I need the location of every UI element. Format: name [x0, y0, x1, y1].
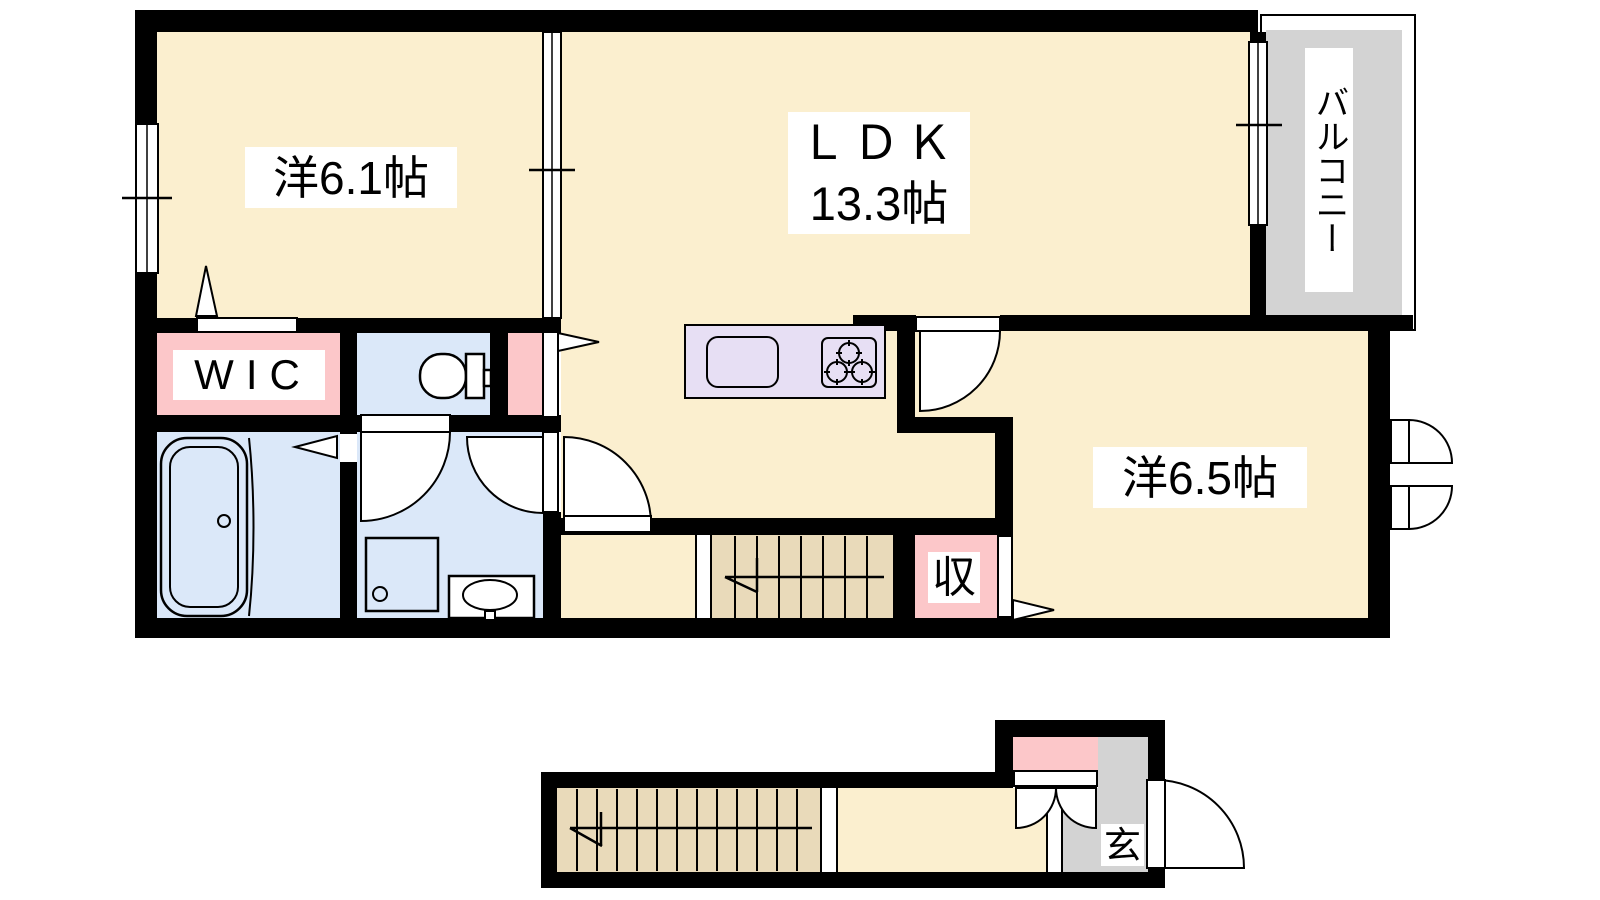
window-icon: [122, 124, 172, 273]
bath-doorway-gap: [340, 434, 357, 462]
wic-opening: [197, 318, 297, 332]
bathtub-icon: [161, 438, 254, 616]
room-label-bedroom1: 洋6.1帖: [245, 147, 457, 208]
stairs-treads-1f: [577, 789, 797, 871]
stairs-direction-arrow-2f: [725, 558, 884, 592]
room-label-bedroom2: 洋6.5帖: [1093, 447, 1307, 508]
shower-pan-icon: [366, 538, 438, 611]
room-label-balcony: バルコニー: [1305, 48, 1353, 292]
window-icon: [1236, 42, 1282, 225]
room-label-wic: WIC: [173, 350, 325, 400]
closet-sliding-panel: [543, 332, 558, 417]
kitchen-counter-icon: [685, 325, 885, 398]
room-label-ldk-name: ＬＤＫ: [788, 112, 970, 173]
window-icon: [529, 32, 575, 318]
floor-plan-canvas: 洋6.1帖 ＬＤＫ 13.3帖 洋6.5帖 WIC 収 バルコニー 玄: [0, 0, 1600, 900]
room-label-entrance: 玄: [1101, 824, 1144, 866]
washbasin-icon: [449, 576, 534, 620]
kitchen-sink-icon: [707, 337, 778, 387]
room-label-storage: 収: [928, 552, 980, 603]
toilet-icon: [420, 354, 491, 398]
stairs-direction-arrow-1f: [570, 812, 812, 846]
room-label-ldk-size: 13.3帖: [788, 173, 970, 234]
